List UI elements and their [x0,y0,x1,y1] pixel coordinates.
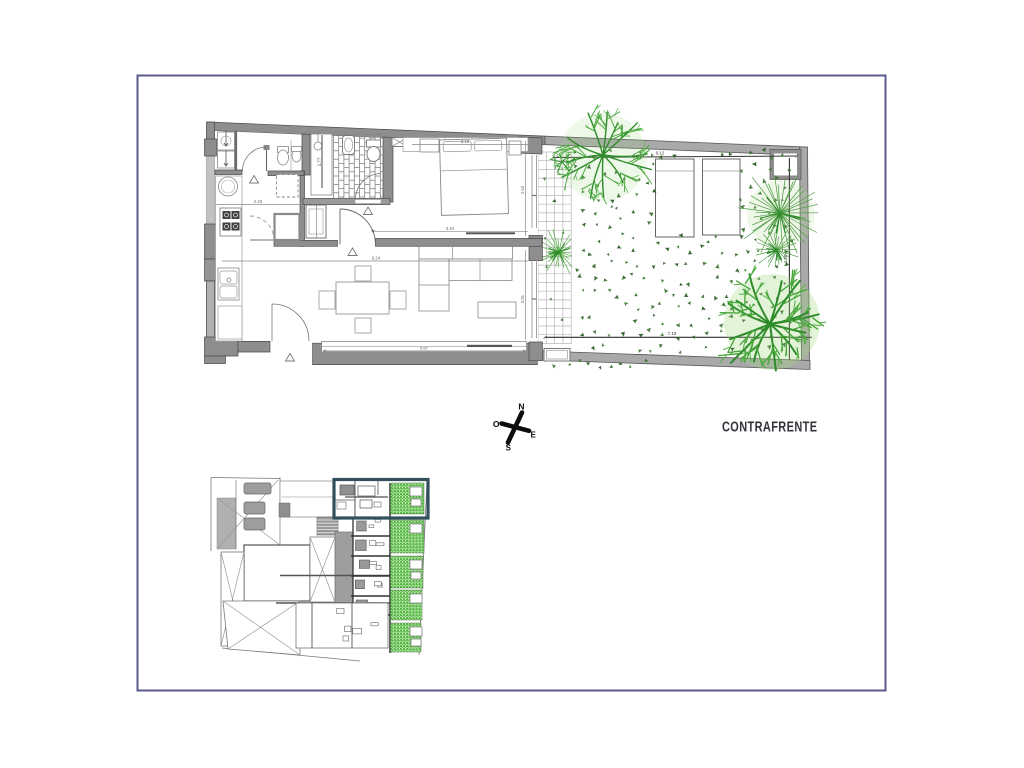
svg-text:7.10: 7.10 [668,331,677,336]
svg-text:6.57: 6.57 [420,346,429,351]
svg-text:2.20: 2.20 [254,199,263,204]
svg-text:CONTRAFRENTE: CONTRAFRENTE [722,418,817,435]
svg-text:N: N [518,402,524,412]
svg-text:6.24: 6.24 [372,256,381,261]
svg-text:3.81: 3.81 [520,294,525,303]
svg-text:O: O [493,419,500,429]
svg-text:3.34: 3.34 [446,226,455,231]
svg-text:E: E [531,431,537,440]
svg-text:1.77: 1.77 [317,157,322,166]
svg-text:S: S [506,444,512,453]
svg-text:3.19: 3.19 [461,139,470,144]
svg-text:2.63: 2.63 [520,185,525,194]
svg-text:6.12: 6.12 [656,151,665,156]
